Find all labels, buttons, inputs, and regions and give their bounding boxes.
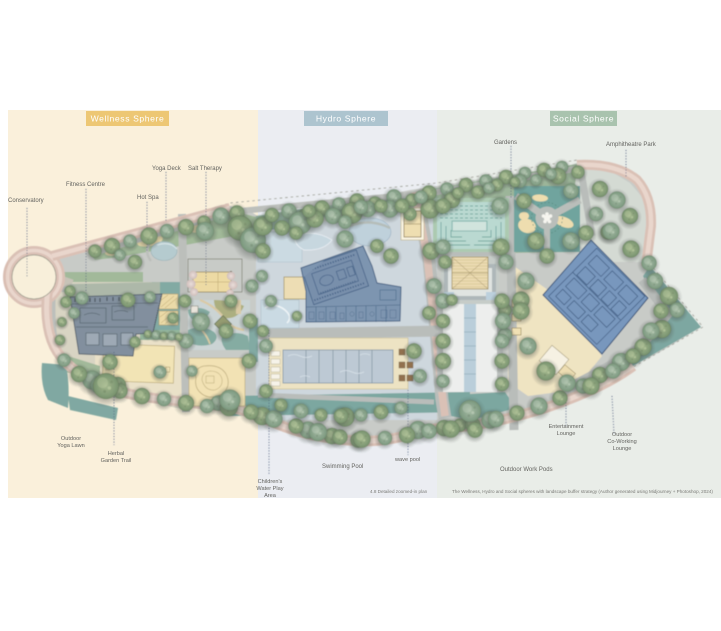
- svg-text:Lounge: Lounge: [613, 446, 632, 452]
- svg-text:Hot Spa: Hot Spa: [137, 195, 159, 201]
- svg-text:Outdoor: Outdoor: [612, 432, 632, 438]
- svg-text:Area: Area: [264, 493, 277, 499]
- svg-text:The Wellness, Hydro and Social: The Wellness, Hydro and Social spheres w…: [452, 489, 713, 494]
- svg-text:Salt Therapy: Salt Therapy: [188, 166, 222, 172]
- svg-text:4.8 Detailed zoomed-in plan: 4.8 Detailed zoomed-in plan: [370, 489, 428, 494]
- svg-text:Conservatory: Conservatory: [8, 198, 44, 204]
- svg-text:Water Play: Water Play: [256, 486, 283, 492]
- svg-text:Co-Working: Co-Working: [607, 439, 636, 445]
- svg-text:wave pool: wave pool: [394, 457, 420, 463]
- svg-text:Outdoor: Outdoor: [61, 436, 81, 442]
- svg-text:Gardens: Gardens: [494, 140, 517, 146]
- svg-text:Entertainment: Entertainment: [549, 424, 584, 430]
- svg-text:Yoga Deck: Yoga Deck: [152, 166, 182, 172]
- svg-text:Swimming Pool: Swimming Pool: [322, 464, 363, 470]
- svg-text:Children's: Children's: [258, 479, 283, 485]
- svg-text:Garden Trail: Garden Trail: [101, 458, 132, 464]
- svg-text:Lounge: Lounge: [557, 431, 576, 437]
- svg-text:Amphitheatre Park: Amphitheatre Park: [606, 142, 657, 148]
- svg-text:Herbal: Herbal: [108, 451, 124, 457]
- svg-text:Yoga Lawn: Yoga Lawn: [57, 443, 84, 449]
- svg-text:Fitness Centre: Fitness Centre: [66, 182, 106, 188]
- svg-text:Outdoor Work Pods: Outdoor Work Pods: [500, 467, 553, 473]
